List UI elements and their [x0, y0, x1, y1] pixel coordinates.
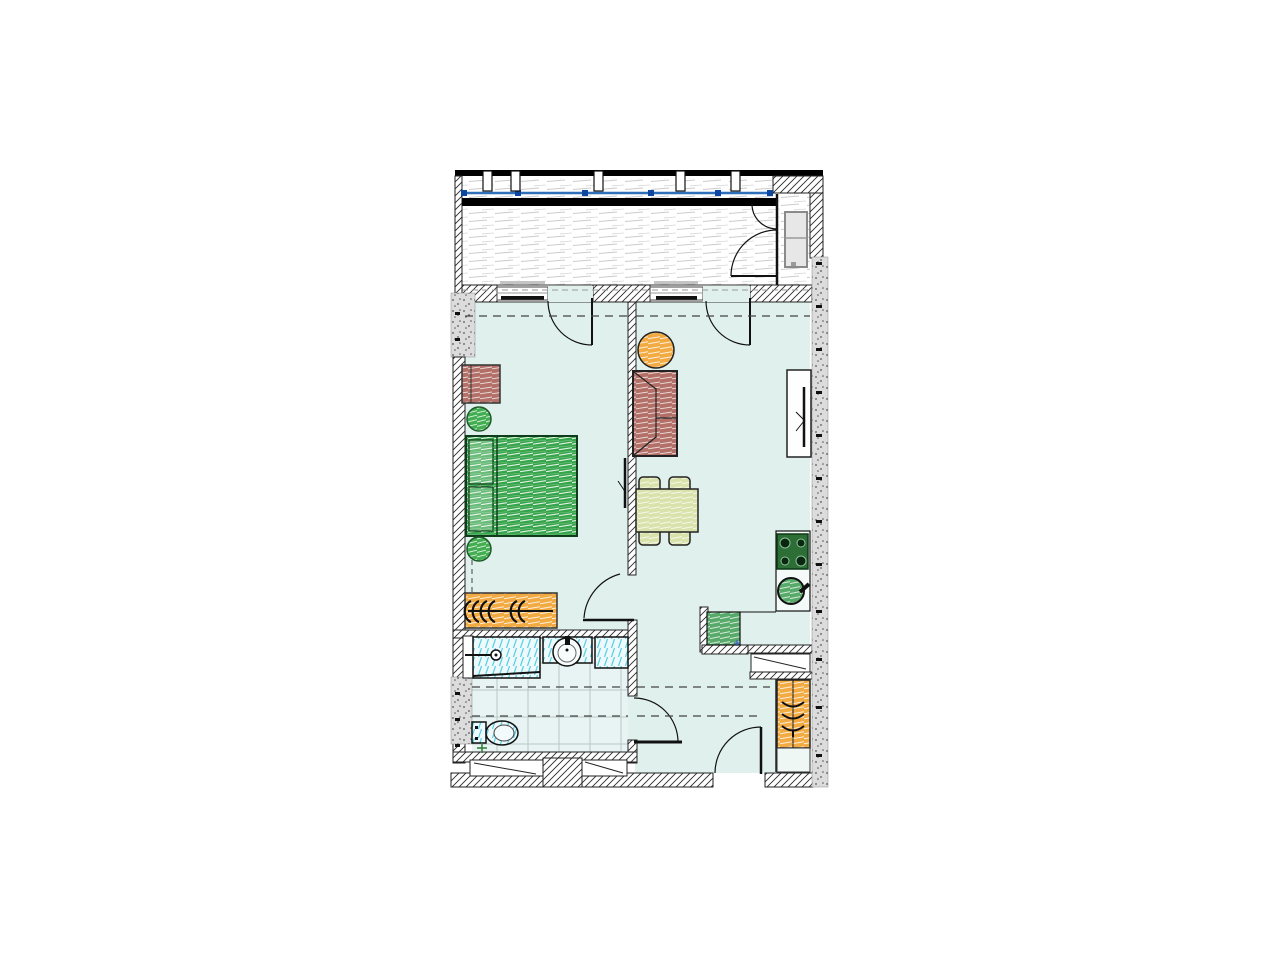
vent-flap-box: [751, 654, 810, 674]
shower-head-dot: [495, 654, 498, 657]
railing-marker: [767, 190, 773, 196]
right-wall-anchor-tick: [816, 348, 822, 351]
balcony-top-edge: [455, 170, 823, 176]
railing-post: [676, 171, 685, 191]
toilet-bowl-inner: [494, 725, 514, 741]
right-wall-anchor-tick: [816, 610, 822, 613]
duct-shaft: [463, 636, 473, 678]
toilet-tank: [472, 722, 486, 743]
right-wall-anchor-tick: [816, 520, 822, 523]
kitchen-bottom-wall-left: [702, 645, 748, 654]
bed-pillow-1: [469, 440, 493, 484]
washer-box: [595, 637, 628, 668]
dining-table: [636, 489, 698, 532]
window1-sill: [501, 296, 544, 300]
window1-outer-sill: [500, 281, 545, 284]
awning-bar: [462, 198, 777, 206]
bedroom-doorway-floor: [628, 575, 636, 620]
burner-4: [796, 556, 806, 566]
railing-marker: [648, 190, 654, 196]
burner-1: [780, 538, 790, 548]
kitchen-counter-low: [707, 612, 740, 645]
right-wall-anchor-tick: [816, 658, 822, 661]
toilet-tank-dot-1: [475, 726, 478, 729]
left-concrete-lower: [451, 677, 472, 744]
left-wall-anchor-tick: [455, 312, 460, 315]
hall-wardrobe-base: [777, 748, 810, 772]
railing-marker: [582, 190, 588, 196]
top-right-wall: [773, 176, 823, 193]
window2-sill: [656, 296, 697, 300]
railing-post: [511, 171, 520, 191]
right-wall-anchor-tick: [816, 434, 822, 437]
left-wall-anchor-tick: [455, 718, 460, 721]
storage-cabinet: [785, 212, 807, 267]
plant-pot-2: [467, 537, 491, 561]
railing-post: [594, 171, 603, 191]
right-wall-anchor-tick: [816, 262, 822, 265]
bathroom-right-wall-upper: [628, 620, 637, 696]
sofa: [633, 371, 677, 456]
right-wall-anchor-tick: [816, 391, 822, 394]
left-wall-anchor-tick: [455, 692, 460, 695]
balcony-door1-opening: [548, 286, 593, 302]
right-wall-anchor-tick: [816, 477, 822, 480]
left-wall-anchor-tick: [455, 744, 460, 747]
basin-tap: [565, 636, 570, 645]
wall-pier-right: [750, 285, 812, 302]
left-concrete-upper: [451, 293, 475, 357]
bathroom-doorway-floor: [628, 696, 637, 740]
vent-under-wall: [750, 672, 812, 679]
railing-marker: [715, 190, 721, 196]
tv-sideboard: [787, 370, 811, 457]
left-wall-anchor-tick: [455, 338, 460, 341]
right-upper-wall: [810, 193, 823, 258]
kitchen-bottom-wall-right: [748, 645, 812, 653]
wall-pier-middle: [593, 285, 650, 302]
right-wall-anchor-tick: [816, 305, 822, 308]
louver-pier: [543, 758, 582, 787]
burner-3: [781, 557, 789, 565]
bottom-right-wall: [765, 773, 813, 787]
railing-post: [483, 171, 492, 191]
plant-pot-1: [467, 407, 491, 431]
railing-marker: [461, 190, 467, 196]
right-wall-anchor-tick: [816, 563, 822, 566]
railing-post: [731, 171, 740, 191]
window2-outer-sill: [654, 281, 698, 284]
toilet-tank-dot-2: [475, 737, 478, 740]
storage-cabinet-handle: [791, 262, 796, 266]
dresser: [462, 365, 500, 403]
balcony-door2-opening: [703, 286, 750, 302]
plan-layer: [451, 170, 828, 787]
floor-plan: [0, 0, 1280, 960]
right-wall-anchor-tick: [816, 754, 822, 757]
living-round-table: [638, 332, 674, 368]
balcony-left-wall: [455, 176, 462, 302]
right-wall-anchor-tick: [816, 706, 822, 709]
floorplan-page: [0, 0, 1280, 960]
bed-pillow-2: [469, 487, 493, 531]
basin-dot: [566, 649, 569, 652]
burner-2: [797, 539, 805, 547]
